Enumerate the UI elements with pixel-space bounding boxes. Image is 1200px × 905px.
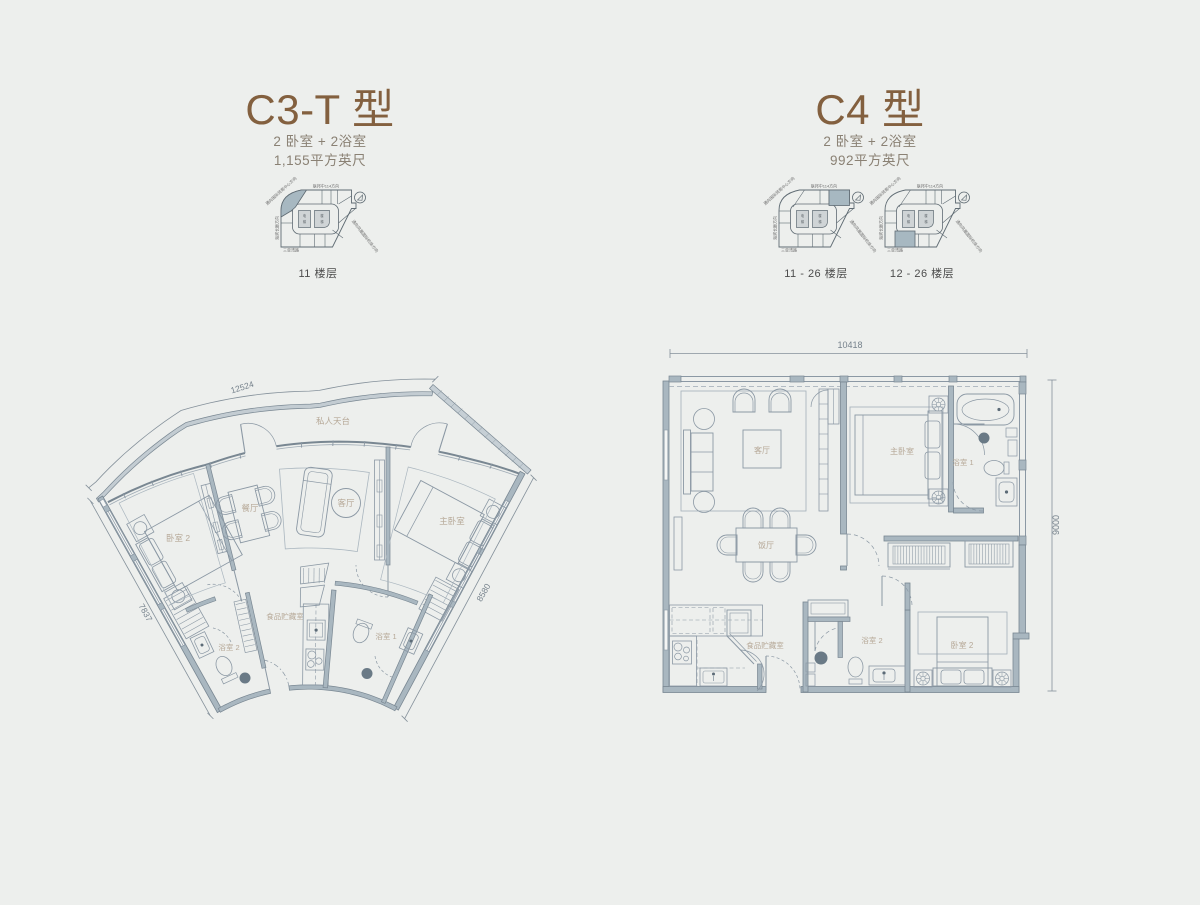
svg-text:2 卧室 + 2浴室: 2 卧室 + 2浴室 bbox=[823, 133, 916, 149]
svg-text:11 楼层: 11 楼层 bbox=[299, 266, 338, 280]
svg-text:食品贮藏室: 食品贮藏室 bbox=[746, 640, 784, 650]
svg-text:联邦中114方向: 联邦中114方向 bbox=[917, 183, 943, 189]
svg-text:私人天台: 私人天台 bbox=[316, 416, 350, 426]
svg-text:992平方英尺: 992平方英尺 bbox=[830, 152, 910, 168]
svg-text:9000: 9000 bbox=[1051, 515, 1061, 535]
svg-text:浴室 1: 浴室 1 bbox=[375, 631, 396, 641]
svg-text:卧室 2: 卧室 2 bbox=[166, 533, 190, 543]
svg-text:三亚湾路: 三亚湾路 bbox=[781, 247, 797, 253]
svg-text:食品贮藏室: 食品贮藏室 bbox=[266, 611, 304, 621]
svg-text:卧室 2: 卧室 2 bbox=[951, 640, 974, 650]
svg-text:餐厅: 餐厅 bbox=[241, 503, 259, 513]
svg-text:12 - 26 楼层: 12 - 26 楼层 bbox=[890, 266, 954, 280]
svg-text:主卧室: 主卧室 bbox=[890, 446, 914, 456]
svg-text:C4 型: C4 型 bbox=[815, 86, 924, 133]
svg-text:饭厅: 饭厅 bbox=[758, 540, 774, 550]
svg-text:联邦中114方向: 联邦中114方向 bbox=[313, 183, 339, 189]
svg-text:浴室 2: 浴室 2 bbox=[218, 642, 239, 652]
svg-text:浴室 1: 浴室 1 bbox=[952, 457, 973, 467]
svg-text:客厅: 客厅 bbox=[754, 445, 770, 455]
svg-text:1,155平方英尺: 1,155平方英尺 bbox=[274, 152, 366, 168]
svg-text:10418: 10418 bbox=[837, 340, 862, 350]
svg-text:浴室 2: 浴室 2 bbox=[861, 635, 882, 645]
svg-text:三亚湾路: 三亚湾路 bbox=[887, 247, 903, 253]
svg-text:主卧室: 主卧室 bbox=[439, 516, 465, 526]
svg-text:客厅: 客厅 bbox=[337, 498, 355, 508]
svg-text:C3-T 型: C3-T 型 bbox=[245, 86, 394, 133]
svg-text:海滨长廊方向: 海滨长廊方向 bbox=[772, 216, 778, 240]
svg-text:海滨长廊方向: 海滨长廊方向 bbox=[274, 216, 280, 240]
svg-text:11 - 26 楼层: 11 - 26 楼层 bbox=[784, 266, 848, 280]
svg-text:联邦中114方向: 联邦中114方向 bbox=[811, 183, 837, 189]
svg-text:三亚湾路: 三亚湾路 bbox=[283, 247, 299, 253]
svg-text:海滨长廊方向: 海滨长廊方向 bbox=[878, 216, 884, 240]
svg-text:2 卧室 + 2浴室: 2 卧室 + 2浴室 bbox=[273, 133, 366, 149]
